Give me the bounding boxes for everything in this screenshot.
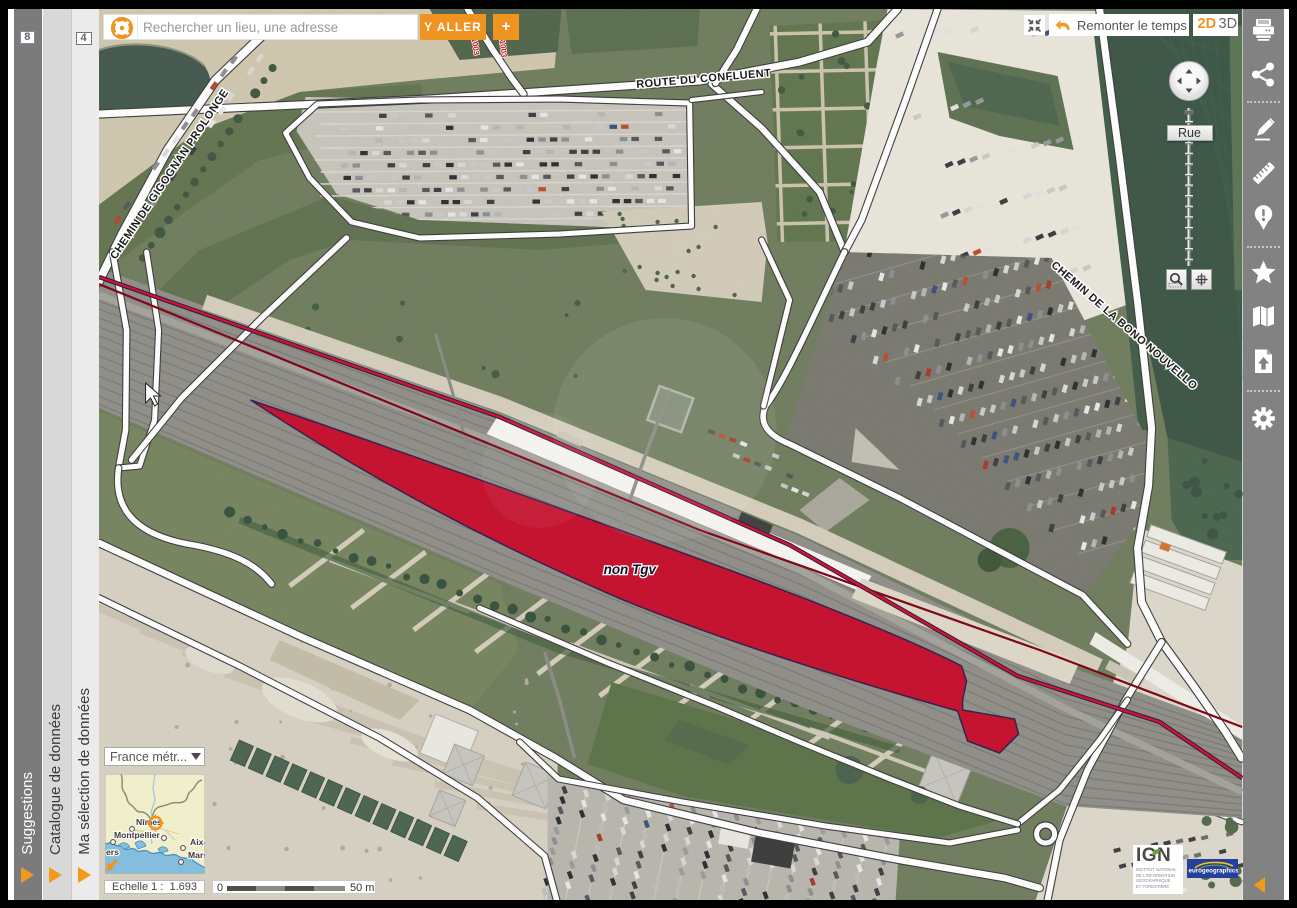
svg-text:1003: 1003 — [498, 39, 509, 58]
svg-text:Mars: Mars — [188, 850, 205, 860]
svg-text:Aix-: Aix- — [190, 837, 205, 847]
svg-text:Montpellier: Montpellier — [114, 830, 160, 840]
svg-text:non Tgv: non Tgv — [604, 562, 658, 577]
svg-text:ers: ers — [106, 847, 119, 857]
svg-text:eurogeographics: eurogeographics — [1189, 868, 1239, 875]
